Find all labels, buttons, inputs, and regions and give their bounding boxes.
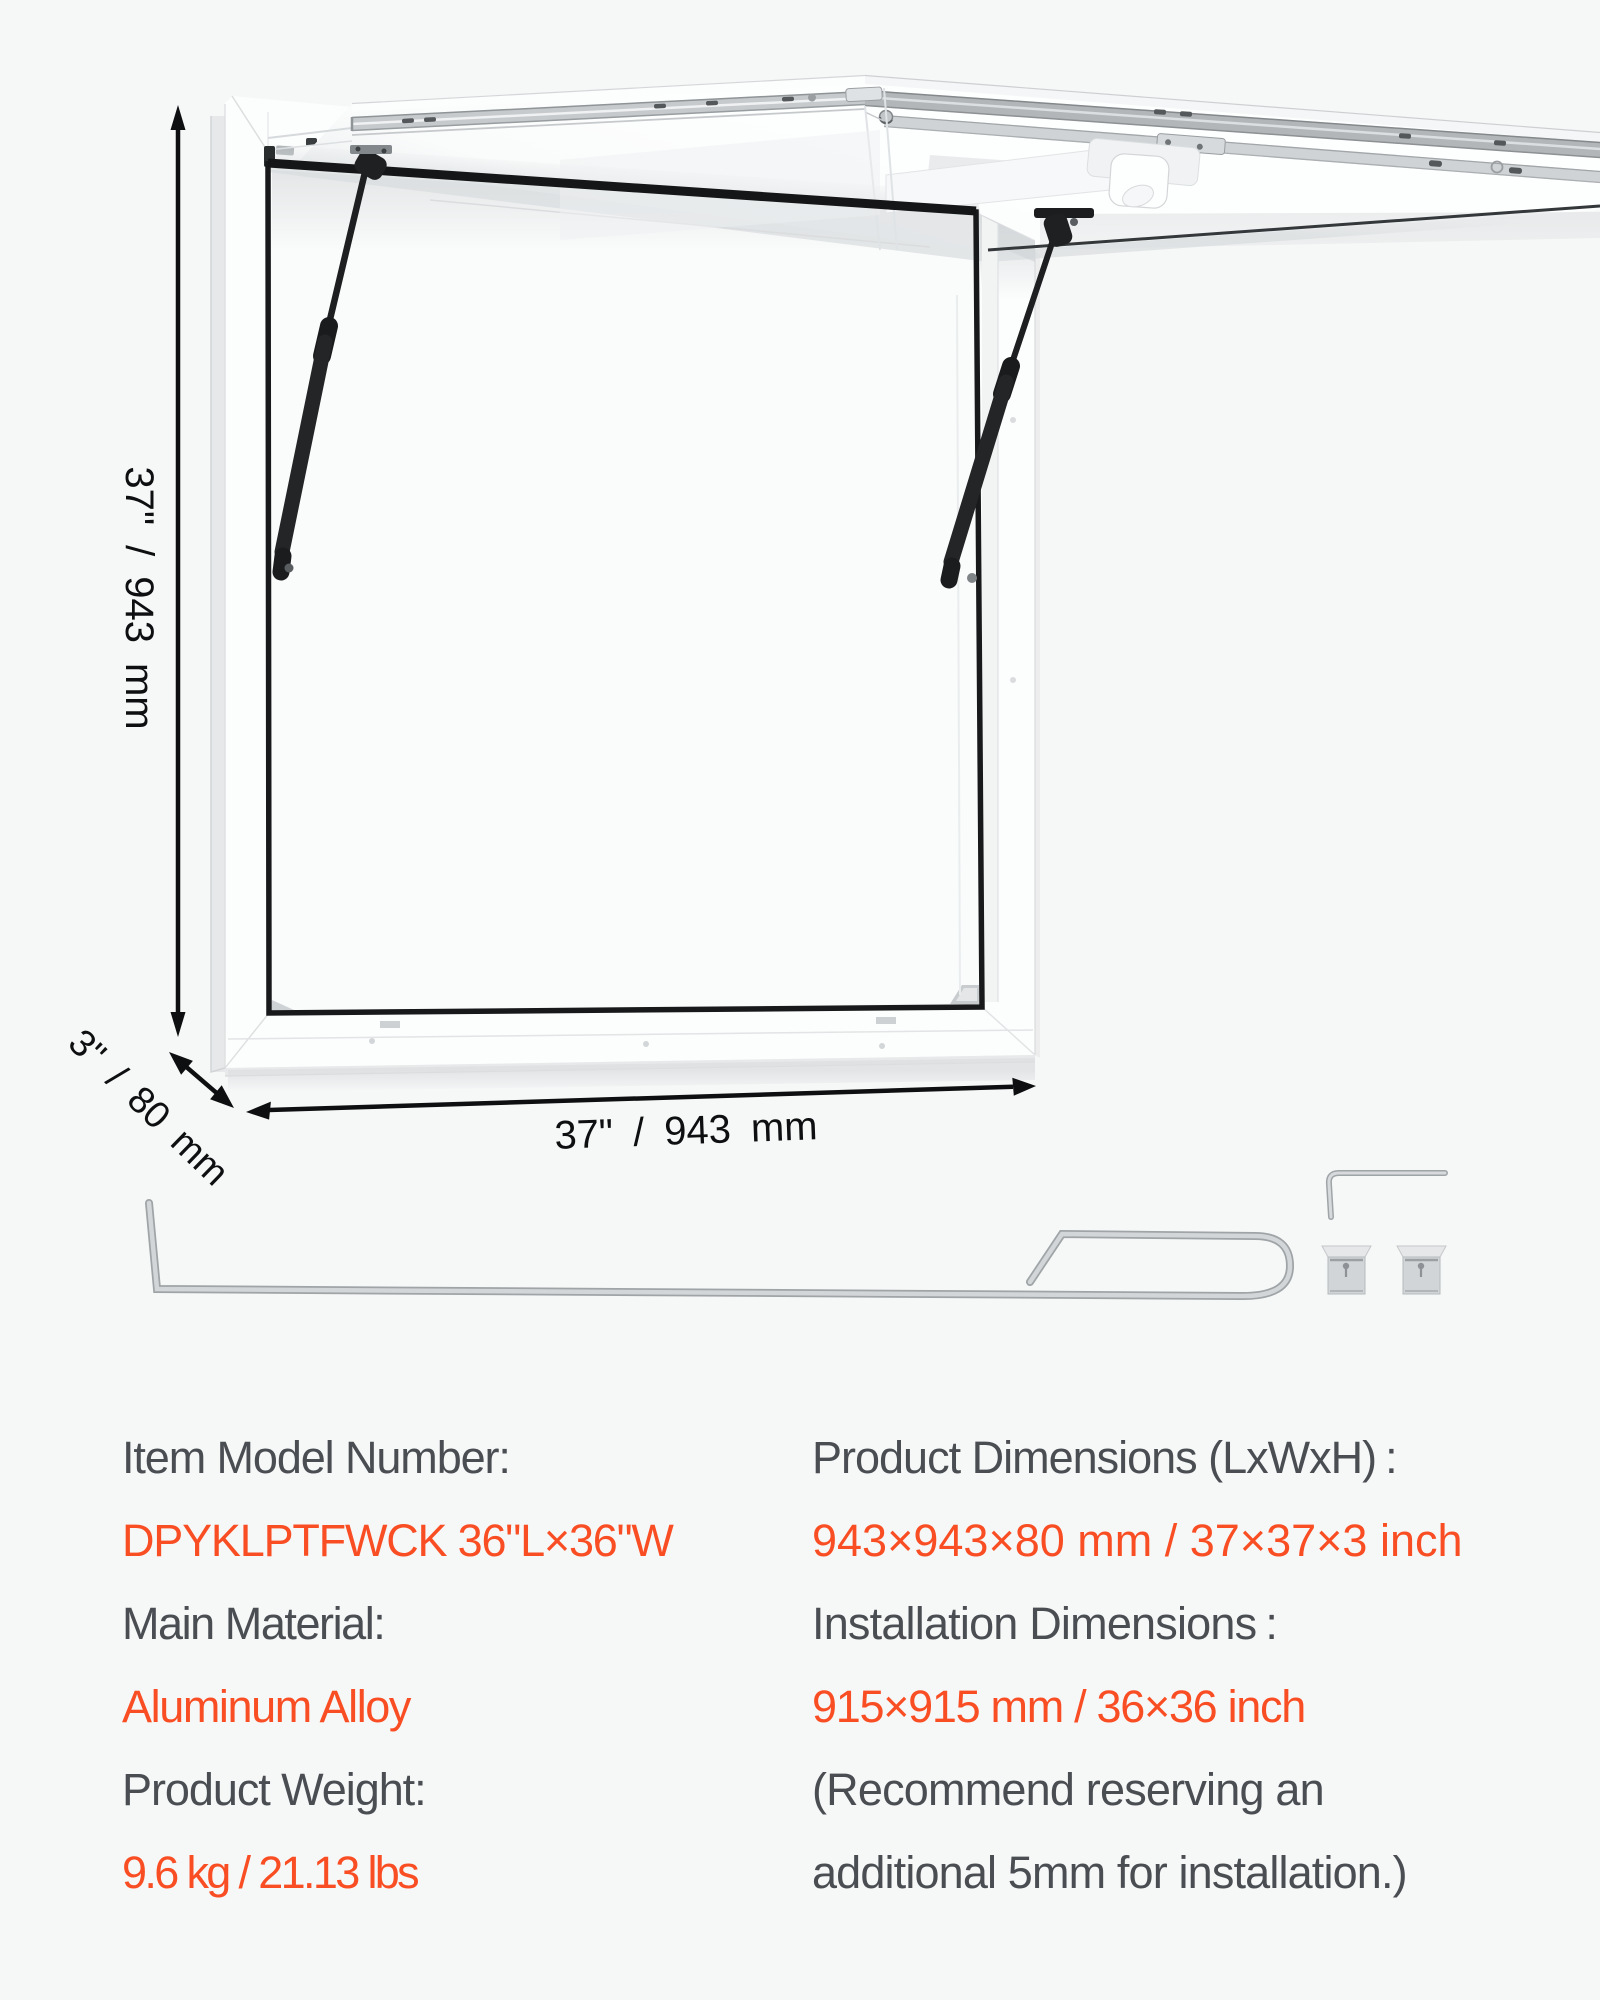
svg-text:37" / 943 mm: 37" / 943 mm bbox=[117, 466, 161, 729]
svg-text:37" / 943 mm: 37" / 943 mm bbox=[554, 1104, 819, 1158]
